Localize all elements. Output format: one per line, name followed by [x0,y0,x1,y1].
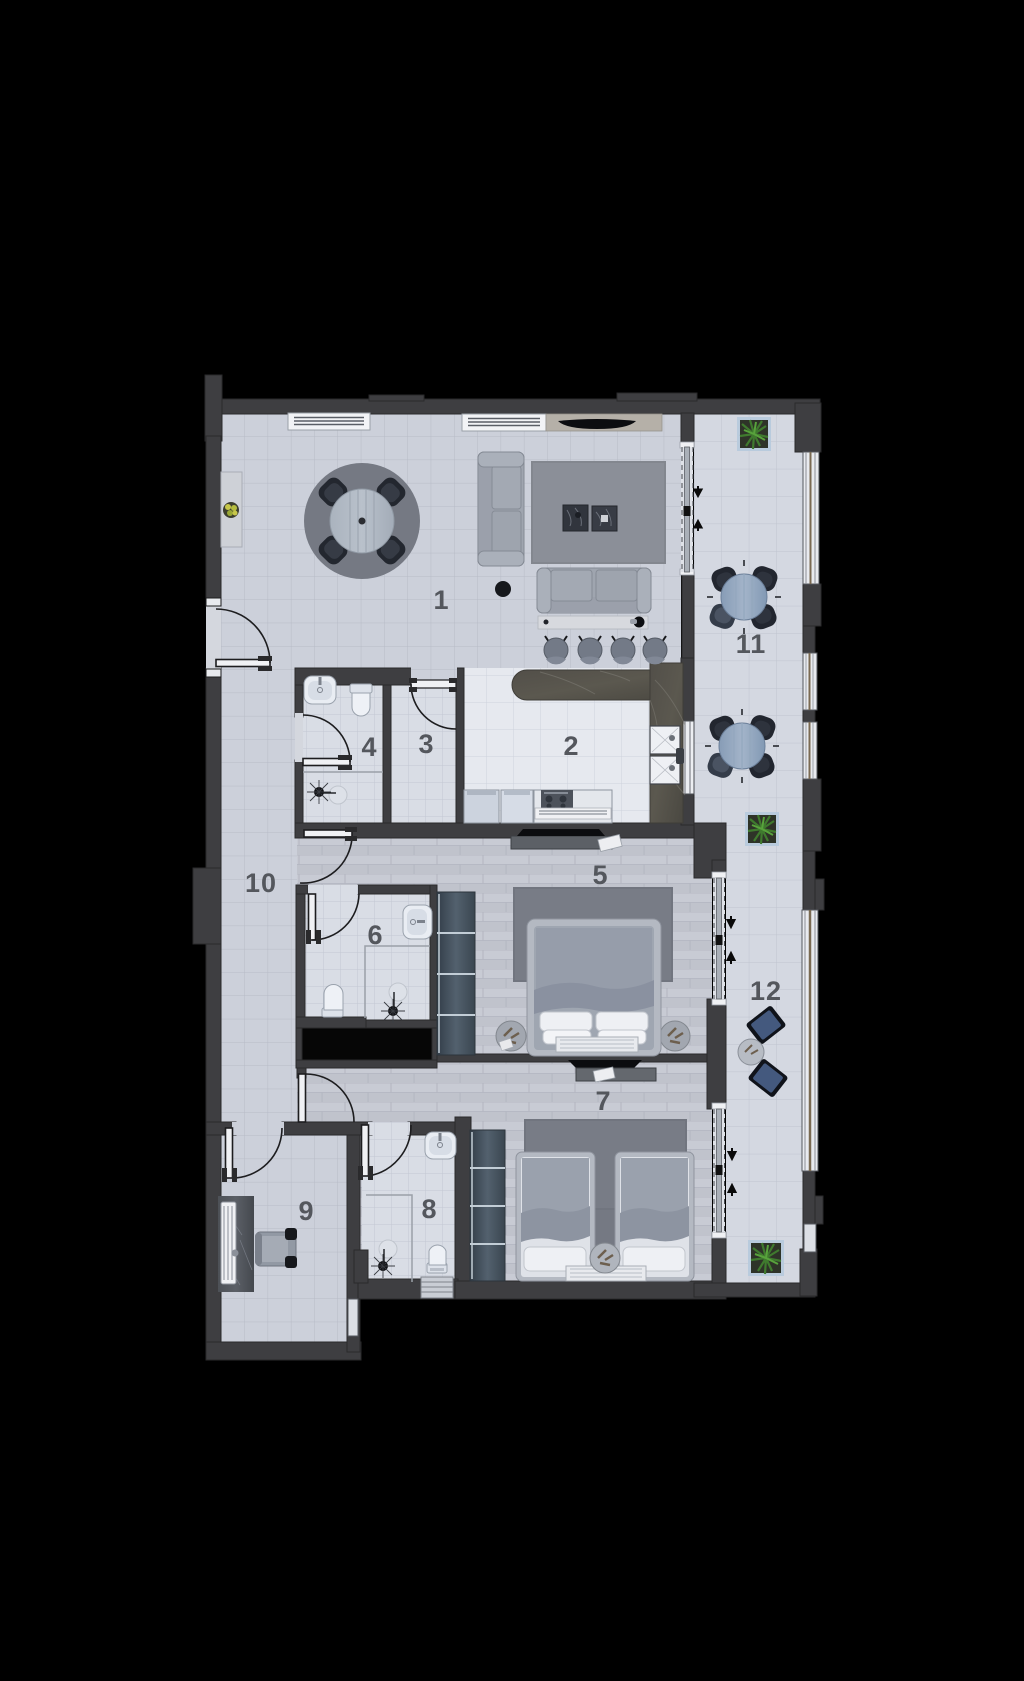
svg-text:3: 3 [418,729,433,759]
svg-text:6: 6 [367,920,382,950]
svg-text:10: 10 [245,868,277,898]
svg-text:7: 7 [595,1086,610,1116]
svg-text:12: 12 [750,976,782,1006]
svg-text:2: 2 [563,731,578,761]
svg-text:1: 1 [433,585,448,615]
svg-text:9: 9 [298,1196,313,1226]
svg-text:4: 4 [361,732,376,762]
svg-text:8: 8 [421,1194,436,1224]
svg-text:11: 11 [736,629,767,659]
svg-text:5: 5 [592,860,607,890]
